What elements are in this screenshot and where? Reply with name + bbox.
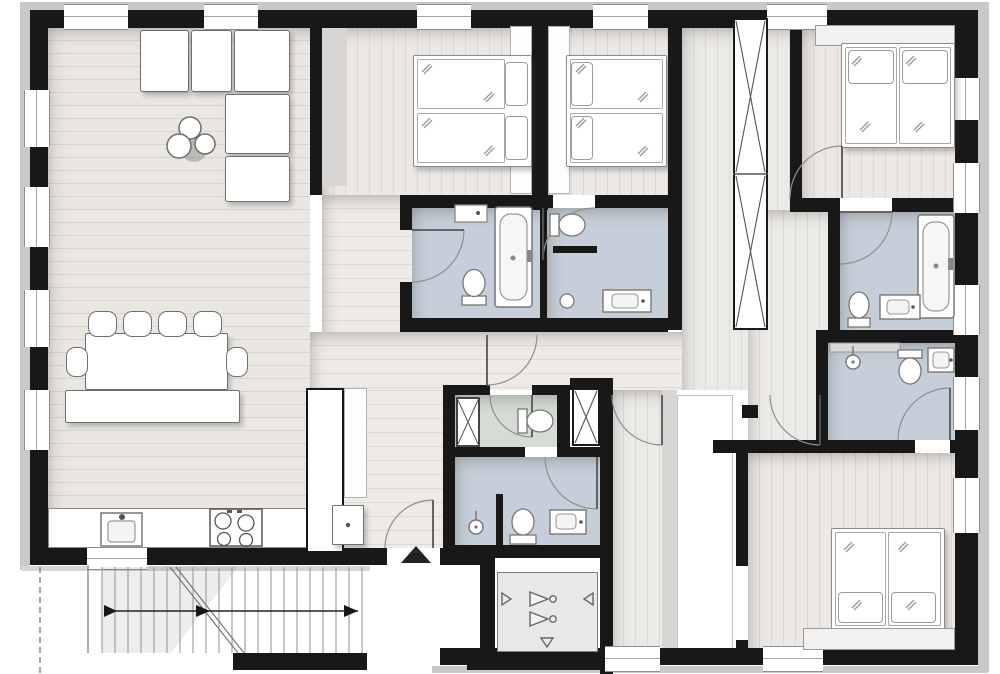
wc-laundry-floor — [455, 395, 557, 447]
dining-chair — [158, 311, 187, 337]
pillow — [838, 592, 883, 623]
mattress — [417, 113, 505, 163]
window — [605, 646, 660, 672]
bathroom-b-floor — [547, 208, 668, 318]
wall-living-right — [310, 28, 322, 195]
window — [593, 4, 648, 30]
dining-chair — [193, 311, 222, 337]
dining-bench — [65, 390, 240, 423]
sofa-seat — [191, 30, 232, 92]
pillow — [891, 592, 936, 623]
bathroom-a-floor — [412, 208, 540, 318]
sofa-seat — [140, 30, 189, 92]
wall-bathC-left — [828, 212, 840, 330]
dining-table — [85, 333, 228, 390]
sofa-chaise — [225, 156, 290, 202]
window — [953, 478, 980, 533]
duct-shaft-center — [572, 388, 600, 446]
wall-left — [30, 347, 48, 390]
wall-wc-left — [443, 385, 455, 558]
duct-shaft-north — [733, 18, 768, 330]
wall-right — [955, 533, 978, 662]
floor-plan — [0, 0, 1000, 674]
wall-top — [471, 10, 593, 28]
dining-chair — [123, 311, 152, 337]
bathroom-c-floor — [840, 212, 955, 330]
dining-chair — [226, 347, 248, 377]
headboard — [803, 628, 955, 650]
facade-lining-bottom-left — [22, 566, 378, 571]
wall-top — [128, 10, 204, 28]
wall-wc-top — [443, 385, 490, 395]
wall-bed3-bottom — [790, 198, 840, 212]
wall-left — [30, 10, 48, 90]
wall-bathD-left — [816, 330, 828, 440]
wall-core-right — [600, 378, 613, 674]
wall-wc-top — [532, 385, 557, 395]
wall-bed4-left — [736, 640, 748, 655]
window — [953, 163, 980, 213]
wall-right — [955, 335, 978, 377]
wall-right — [955, 213, 978, 285]
corridor-edge-strip — [662, 390, 677, 650]
window — [24, 290, 50, 347]
wall-bed3-bottom — [892, 198, 955, 212]
corridor-south-floor — [612, 390, 662, 652]
pillow — [505, 62, 528, 106]
door-leaf-hall-east — [742, 405, 758, 418]
window-kitchen — [87, 546, 147, 570]
wall-wc-bathE — [443, 447, 525, 457]
window — [24, 390, 50, 450]
window — [24, 90, 50, 147]
wall-bathC-bathD — [828, 330, 955, 343]
wardrobe-living-side — [322, 28, 347, 186]
storage-strip — [677, 395, 733, 650]
wall-living-bottom — [147, 548, 387, 565]
wall-bathA-left — [400, 282, 412, 332]
mattress — [417, 59, 505, 109]
window — [953, 285, 980, 335]
sofa-chaise — [225, 94, 290, 154]
wall-elevator-bottom — [467, 655, 613, 670]
cabinet-column — [344, 388, 367, 498]
wall-bathA-left — [400, 195, 412, 230]
wall-left — [30, 247, 48, 290]
wall-bed1-bed2 — [532, 28, 548, 210]
wall-baths-top — [595, 195, 668, 208]
wall-bathA-bathB — [540, 195, 547, 332]
elevator-cab — [497, 572, 598, 652]
pillow — [571, 116, 593, 160]
entry-cabinet — [332, 505, 364, 545]
dining-chair — [88, 311, 117, 337]
wall-right — [955, 120, 978, 163]
wall-right — [955, 430, 978, 478]
window — [953, 377, 980, 430]
pillow — [848, 50, 894, 84]
kitchen-counter — [48, 508, 310, 548]
wall-bed2-right — [668, 28, 682, 330]
wall-elevator-left — [480, 556, 495, 668]
stair-direction-arrow-icon — [104, 605, 117, 617]
entry-landing — [370, 565, 480, 653]
wall-left — [30, 147, 48, 187]
window — [417, 4, 471, 30]
bathroom-e-floor — [455, 457, 600, 545]
stair-direction-arrow-icon — [196, 605, 210, 617]
wall-baths-top — [402, 195, 553, 208]
bathroom-d-floor — [828, 343, 955, 440]
window — [953, 78, 980, 120]
wall-right — [955, 10, 978, 78]
wall-baths-bottom — [402, 318, 668, 332]
pillow — [571, 62, 593, 106]
facade-lining-left — [20, 2, 30, 570]
wall-top — [258, 10, 417, 28]
door-leaf-bed4 — [736, 548, 748, 566]
wall-bed3-left — [790, 28, 802, 198]
window — [24, 187, 50, 247]
wall-bed4-left — [736, 443, 748, 548]
wall-stairs-bottom — [233, 653, 367, 670]
wall-bottom — [823, 648, 978, 665]
wall-living-bottom — [30, 548, 87, 565]
window — [204, 4, 258, 30]
entrance-triangle-icon — [401, 546, 431, 563]
facade-lining-top — [22, 2, 984, 10]
window — [64, 4, 128, 30]
dining-chair — [66, 347, 88, 377]
pillow — [902, 50, 948, 84]
wall-bed4-top — [950, 440, 955, 453]
break-line — [170, 567, 238, 653]
stair-direction-arrow-icon — [344, 605, 358, 617]
pillow — [505, 116, 528, 160]
wall-bathE-bottom — [443, 545, 612, 558]
sofa-seat — [234, 30, 290, 92]
